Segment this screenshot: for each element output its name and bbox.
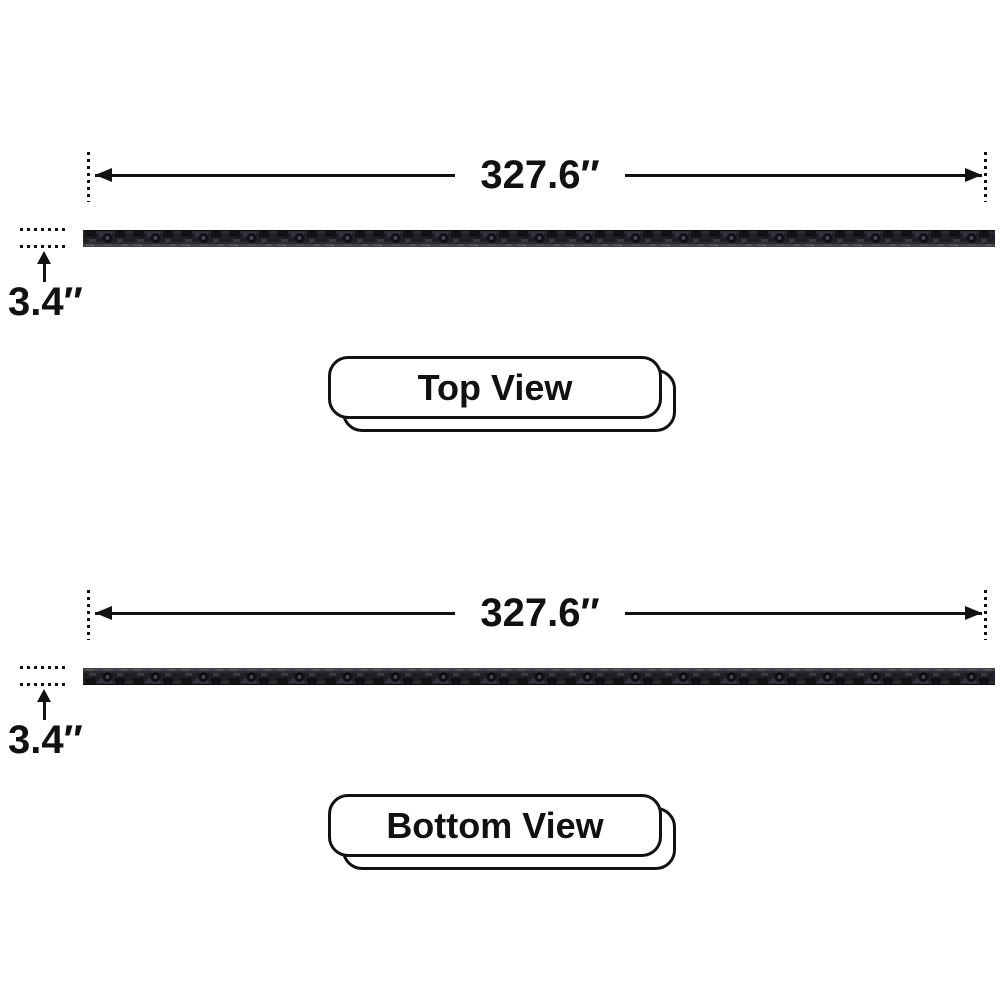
- light-bar-top-view: [83, 230, 995, 247]
- height-extension-line-top: [20, 228, 68, 231]
- bottom-view-badge: Bottom View: [328, 794, 662, 857]
- view-label-text: Bottom View: [386, 805, 603, 847]
- arrow-right-icon: [965, 168, 982, 182]
- height-extension-line-bottom: [20, 245, 68, 248]
- top-view-badge: Top View: [328, 356, 662, 419]
- height-extension-line-bottom: [20, 683, 68, 686]
- length-dimension-label: 327.6″: [455, 151, 625, 199]
- arrow-left-icon: [95, 168, 112, 182]
- height-extension-line-top: [20, 666, 68, 669]
- height-arrow-line: [43, 262, 46, 282]
- light-bar-bottom-view: [83, 668, 995, 685]
- view-label-text: Top View: [418, 367, 573, 409]
- product-dimension-diagram: 327.6″: [0, 0, 1000, 1000]
- height-arrow-line: [43, 700, 46, 720]
- length-dimension-label: 327.6″: [455, 589, 625, 637]
- height-dimension-label: 3.4″: [8, 718, 83, 763]
- arrow-left-icon: [95, 606, 112, 620]
- height-dimension-label: 3.4″: [8, 280, 83, 325]
- dimension-extension-line-left: [87, 152, 90, 202]
- dimension-extension-line-right: [984, 152, 987, 202]
- dimension-extension-line-right: [984, 590, 987, 640]
- top-view-section: 327.6″: [0, 0, 1000, 500]
- bottom-view-section: 327.6″: [0, 438, 1000, 938]
- dimension-extension-line-left: [87, 590, 90, 640]
- arrow-right-icon: [965, 606, 982, 620]
